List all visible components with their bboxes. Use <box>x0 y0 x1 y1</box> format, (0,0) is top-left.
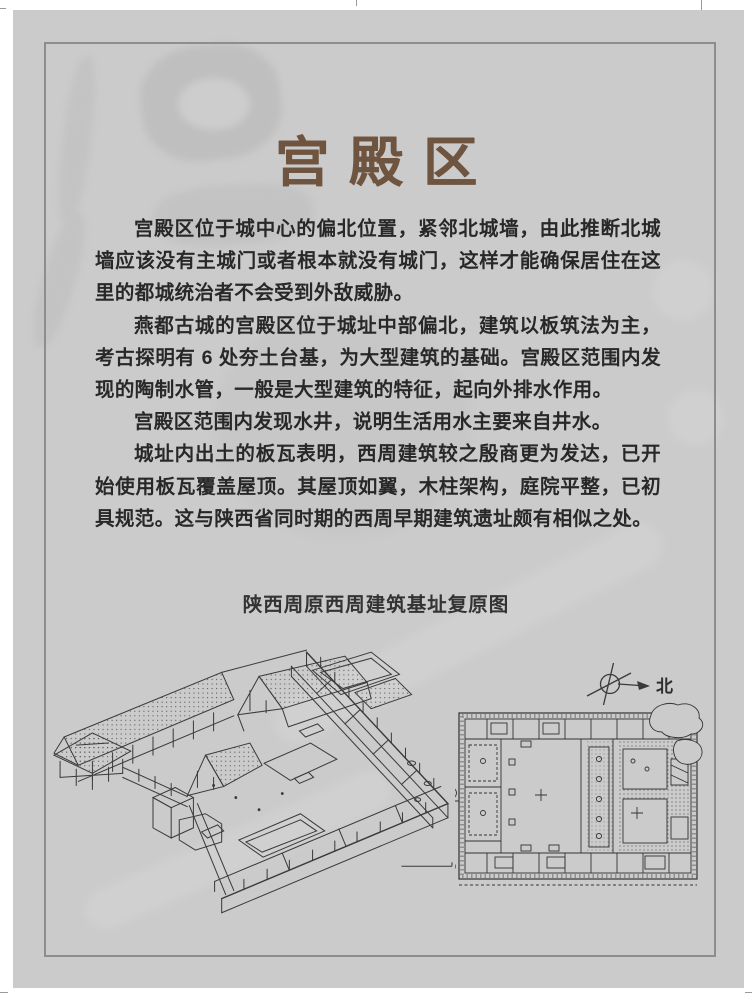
north-arrow-head <box>637 681 650 690</box>
scale-bar <box>401 862 452 866</box>
figure-area: 北 <box>0 0 752 1000</box>
floor-plan-drawing <box>455 700 705 892</box>
book-page: 宫殿区 宫殿区位于城中心的偏北位置，紧邻北城墙，由此推断北城墙应该没有主城门或者… <box>0 0 752 1000</box>
north-label: 北 <box>656 677 673 696</box>
isometric-reconstruction-drawing: 0米 <box>52 642 456 935</box>
